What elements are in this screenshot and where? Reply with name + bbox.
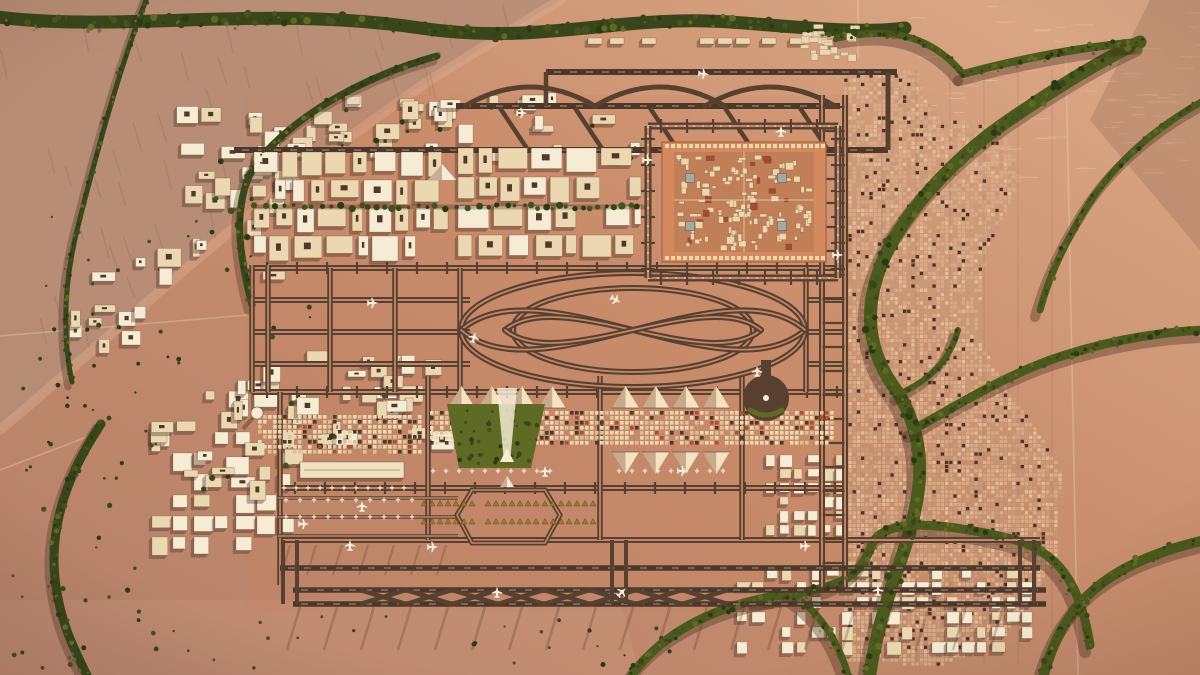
aerial-scene	[0, 0, 1200, 675]
aerial-render-figure	[0, 0, 1200, 675]
vignette-overlay	[0, 0, 1200, 675]
